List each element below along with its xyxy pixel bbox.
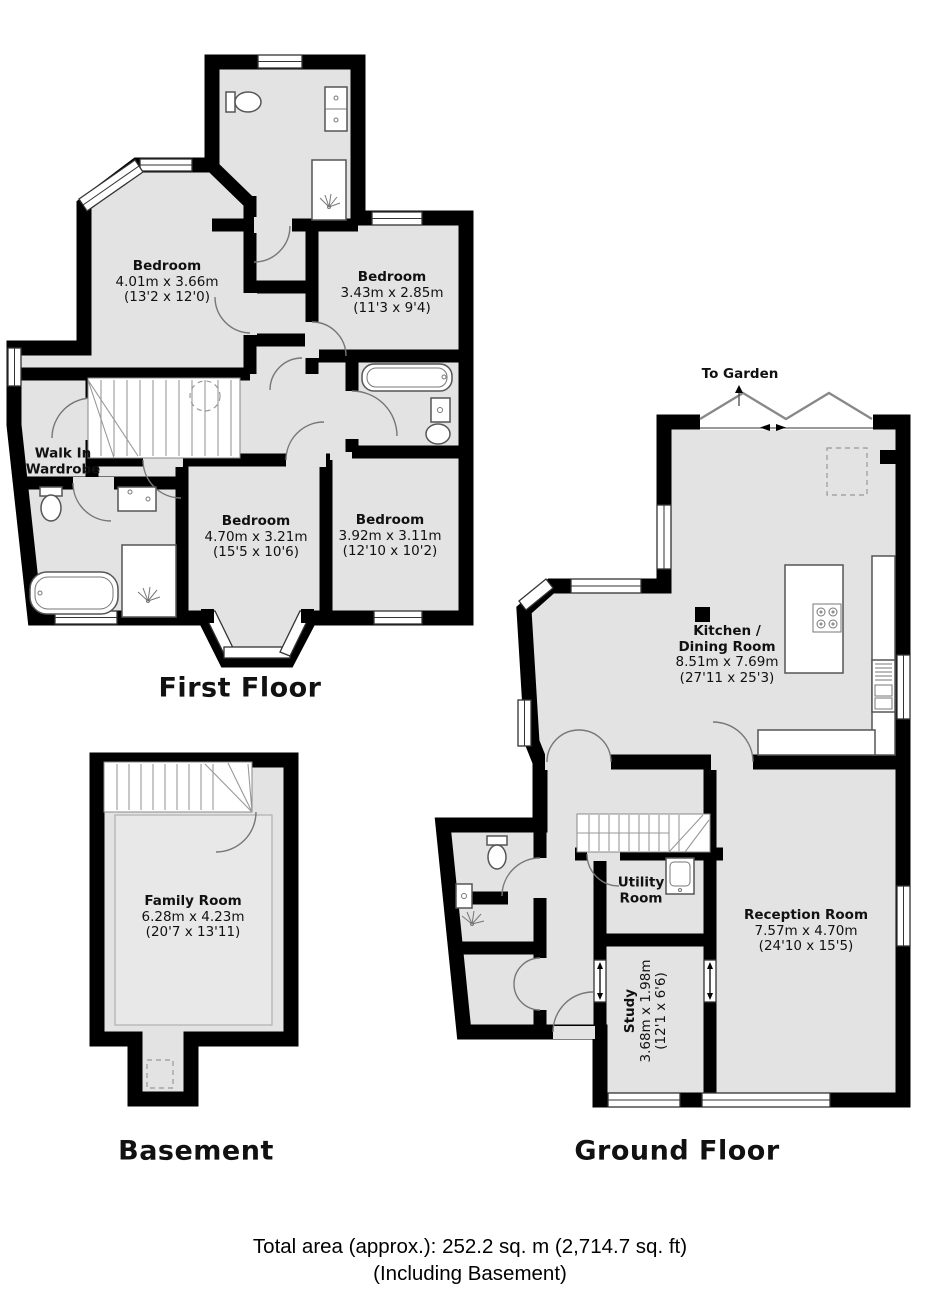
toilet-icon [487, 836, 507, 845]
toilet-icon [488, 845, 506, 869]
ground-stairs [577, 814, 710, 852]
room-imperial: (11'3 x 9'4) [341, 301, 444, 317]
room-metric: 7.57m x 4.70m [744, 923, 868, 939]
room-name: Reception Room [744, 908, 868, 924]
to-garden-arrow [735, 385, 743, 406]
floorplan-page: Bedroom 4.01m x 3.66m (13'2 x 12'0) Bedr… [0, 0, 940, 1301]
room-metric: 4.01m x 3.66m [116, 274, 219, 290]
counter [758, 730, 875, 755]
wall-pier [880, 450, 897, 464]
ground-floor-title: Ground Floor [574, 1136, 779, 1167]
room-label-kitchen-dining: Kitchen / Dining Room 8.51m x 7.69m (27'… [676, 624, 779, 686]
ground-floor-plan [443, 385, 910, 1107]
room-imperial: (15'5 x 10'6) [205, 545, 308, 561]
kitchen-island [785, 565, 843, 673]
toilet-icon [426, 424, 450, 444]
sink-icon [456, 884, 472, 908]
room-metric: 6.28m x 4.23m [142, 909, 245, 925]
total-area-note: Total area (approx.): 252.2 sq. m (2,714… [0, 1233, 940, 1287]
sink-icon [431, 398, 450, 422]
toilet-icon [41, 495, 61, 521]
floorplan-canvas [0, 0, 940, 1301]
room-label-walk-in-wardrobe: Walk In Wardrobe [26, 447, 101, 478]
bifold-doors [700, 393, 873, 431]
room-label-bedroom3: Bedroom 4.70m x 3.21m (15'5 x 10'6) [205, 514, 308, 561]
room-name: Bedroom [205, 514, 308, 530]
room-label-bedroom1: Bedroom 4.01m x 3.66m (13'2 x 12'0) [116, 259, 219, 306]
total-area-line1: Total area (approx.): 252.2 sq. m (2,714… [0, 1233, 940, 1260]
first-floor-title: First Floor [158, 673, 321, 704]
basement-title: Basement [118, 1136, 274, 1167]
room-label-bedroom4: Bedroom 3.92m x 3.11m (12'10 x 10'2) [339, 513, 442, 560]
room-imperial: (27'11 x 25'3) [676, 671, 779, 687]
room-imperial: (24'10 x 15'5) [744, 939, 868, 955]
room-metric: 8.51m x 7.69m [676, 655, 779, 671]
toilet-icon [226, 92, 235, 112]
to-garden-label: To Garden [702, 366, 779, 382]
toilet-icon [235, 92, 261, 112]
room-name: Bedroom [116, 259, 219, 275]
room-imperial: (12'1 x 6'6) [654, 960, 670, 1063]
room-metric: 4.70m x 3.21m [205, 529, 308, 545]
shower-tray [312, 160, 346, 220]
room-imperial: (12'10 x 10'2) [339, 544, 442, 560]
room-name: Bedroom [339, 513, 442, 529]
room-metric: 3.68m x 1.98m [638, 960, 654, 1063]
room-metric: 3.92m x 3.11m [339, 528, 442, 544]
total-area-line2: (Including Basement) [0, 1260, 940, 1287]
utility-sink-icon [666, 858, 694, 894]
room-label-family-room: Family Room 6.28m x 4.23m (20'7 x 13'11) [142, 894, 245, 941]
room-name: Family Room [142, 894, 245, 910]
room-label-study: Study 3.68m x 1.98m (12'1 x 6'6) [623, 960, 670, 1063]
room-imperial: (13'2 x 12'0) [116, 290, 219, 306]
room-label-utility: Utility Room [618, 876, 665, 907]
room-name: Study [623, 960, 639, 1063]
room-label-reception: Reception Room 7.57m x 4.70m (24'10 x 15… [744, 908, 868, 955]
room-name: Bedroom [341, 270, 444, 286]
column [695, 607, 710, 622]
room-imperial: (20'7 x 13'11) [142, 925, 245, 941]
staircase [88, 378, 240, 458]
room-metric: 3.43m x 2.85m [341, 285, 444, 301]
shower-tray [122, 545, 176, 617]
counter [872, 556, 895, 755]
room-label-bedroom2: Bedroom 3.43m x 2.85m (11'3 x 9'4) [341, 270, 444, 317]
first-floor-plan [8, 55, 466, 660]
